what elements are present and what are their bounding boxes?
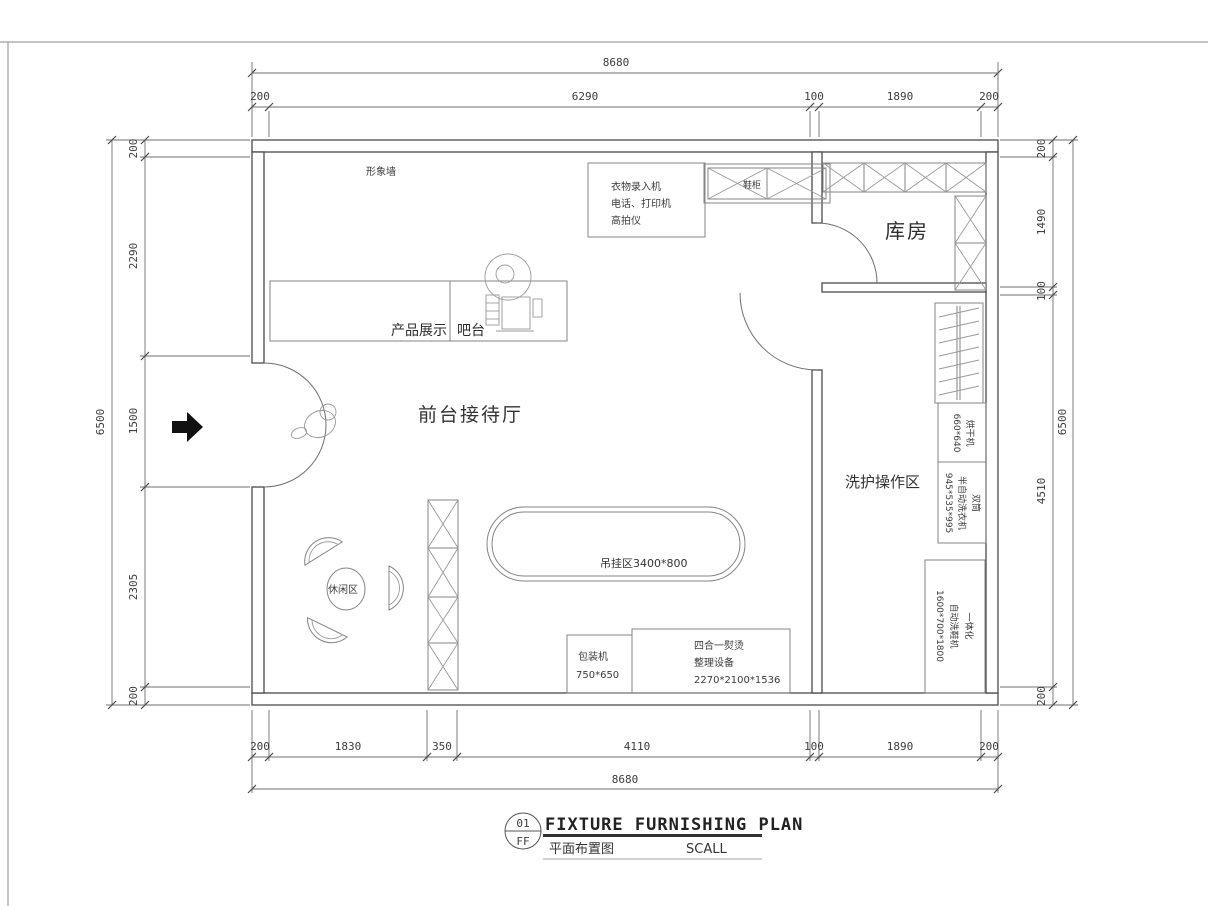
- wall-top: [252, 140, 998, 152]
- dim-top-seg2: 100: [804, 90, 824, 103]
- hanging-zone-label: 吊挂区3400*800: [600, 556, 688, 570]
- entrance-arrow-icon: [172, 412, 203, 442]
- dim-left-seg4: 200: [127, 686, 140, 706]
- dim-bottom-seg4: 100: [804, 740, 824, 753]
- wall-storage-floor: [822, 283, 986, 292]
- dim-top-seg4: 200: [979, 90, 999, 103]
- dim-bottom-seg5: 1890: [887, 740, 914, 753]
- dim-bottom-seg3: 4110: [624, 740, 651, 753]
- dim-bottom-total: 8680: [612, 773, 639, 786]
- dim-right-total: 6500: [1056, 409, 1069, 436]
- floor-plan-drawing: 形象墙 衣物录入机 电话、打印机 高拍仪 鞋柜 库房 产品展示 吧台 前台接待厅…: [0, 0, 1208, 906]
- dryer-line1: 烘干机: [964, 419, 976, 446]
- dim-left-seg2: 1500: [127, 408, 140, 435]
- ironing-line2: 整理设备: [694, 656, 734, 669]
- entrance-door-leaf-top: [264, 363, 326, 425]
- chair-right: [389, 566, 403, 610]
- dim-top-seg0: 200: [250, 90, 270, 103]
- wall-interior-lower: [812, 370, 822, 693]
- washing-area-door-arc: [740, 293, 817, 370]
- title-block: 01 FF FIXTURE FURNISHING PLAN 平面布置图 SCAL…: [505, 813, 803, 859]
- drawing-title-cn: 平面布置图: [549, 842, 614, 857]
- washing-area-label: 洗护操作区: [845, 473, 920, 491]
- dim-left-total: 6500: [94, 409, 107, 436]
- washer-line1: 双筒: [970, 494, 982, 512]
- dim-bottom: 200 1830 350 4110 100 1890 200 8680: [248, 710, 1002, 793]
- dim-right-seg1: 1490: [1035, 209, 1048, 236]
- shoe-washer-line2: 自动洗鞋机: [948, 603, 960, 648]
- chair-bottom-left: [301, 618, 347, 650]
- dim-left-seg1: 2290: [127, 243, 140, 270]
- dim-right-seg0: 200: [1035, 139, 1048, 159]
- dim-top-total: 8680: [603, 56, 630, 69]
- dim-bottom-seg1: 1830: [335, 740, 362, 753]
- washer-line2: 半自动洗衣机: [956, 476, 968, 530]
- wall-bottom: [252, 693, 998, 705]
- display-column-shelf: [428, 500, 458, 690]
- packing-line2: 750*650: [576, 670, 619, 681]
- reception-hall-label: 前台接待厅: [418, 404, 523, 426]
- person-figure: [290, 404, 340, 443]
- chair-top-left: [297, 530, 342, 566]
- wall-left-lower: [252, 487, 264, 693]
- dryer-line2: 660*640: [951, 414, 961, 453]
- dim-bottom-seg2: 350: [432, 740, 452, 753]
- drawing-title-en: FIXTURE FURNISHING PLAN: [545, 815, 803, 835]
- storage-right-shelf: [955, 196, 986, 290]
- shoe-washer-line3: 1600*700*1800: [934, 590, 944, 662]
- entrance-door-leaf-bottom: [264, 425, 326, 487]
- image-wall-label: 形象墙: [366, 165, 396, 178]
- dim-bottom-seg0: 200: [250, 740, 270, 753]
- bar-counter-label: 吧台: [457, 323, 485, 339]
- dryer-box: [938, 403, 986, 462]
- wall-left-upper: [252, 152, 264, 363]
- dim-top-seg1: 6290: [572, 90, 599, 103]
- intake-line1: 衣物录入机: [611, 180, 661, 193]
- dim-right-seg3: 4510: [1035, 478, 1048, 505]
- washer-line3: 945*535*995: [943, 473, 953, 534]
- product-display-label: 产品展示: [391, 323, 447, 339]
- plan-labels: 形象墙 衣物录入机 电话、打印机 高拍仪 鞋柜 库房 产品展示 吧台 前台接待厅…: [328, 165, 982, 686]
- storage-room-label: 库房: [885, 219, 929, 243]
- packing-machine-box: [567, 635, 632, 693]
- scale-label: SCALL: [686, 842, 727, 857]
- wall-right: [986, 152, 998, 693]
- title-underline: [543, 834, 762, 837]
- dim-left-seg0: 200: [127, 139, 140, 159]
- dim-right-seg2: 100: [1035, 281, 1048, 301]
- intake-line3: 高拍仪: [611, 214, 641, 227]
- dim-right: 200 1490 100 4510 200 6500: [1000, 136, 1078, 709]
- leisure-area-label: 休闲区: [328, 583, 358, 596]
- drawing-code: FF: [516, 835, 529, 848]
- sheet-border: [0, 42, 1208, 906]
- shoe-washer-line1: 一体化: [963, 612, 975, 639]
- dim-right-seg4: 200: [1035, 686, 1048, 706]
- bar-seat-and-equipment: [485, 254, 542, 331]
- dim-top-seg3: 1890: [887, 90, 914, 103]
- wall-interior-upper: [812, 152, 822, 223]
- floor-plan-sheet: 形象墙 衣物录入机 电话、打印机 高拍仪 鞋柜 库房 产品展示 吧台 前台接待厅…: [0, 0, 1208, 906]
- furniture: [270, 163, 986, 693]
- storage-top-shelf: [823, 163, 986, 192]
- shoe-cabinet-label: 鞋柜: [743, 179, 761, 191]
- drawing-number: 01: [516, 817, 529, 830]
- ironing-line3: 2270*2100*1536: [694, 675, 780, 686]
- doors: [172, 223, 877, 487]
- dim-top: 8680 200 6290 100 1890 200: [248, 56, 1002, 137]
- ironing-line1: 四合一熨烫: [694, 639, 744, 652]
- storage-door-arc: [817, 223, 877, 283]
- hanger-rack: [935, 303, 983, 403]
- packing-line1: 包装机: [578, 650, 608, 663]
- dim-bottom-seg6: 200: [979, 740, 999, 753]
- intake-line2: 电话、打印机: [611, 197, 671, 210]
- shoe-cabinet: [704, 164, 830, 203]
- dim-left-seg3: 2305: [127, 574, 140, 601]
